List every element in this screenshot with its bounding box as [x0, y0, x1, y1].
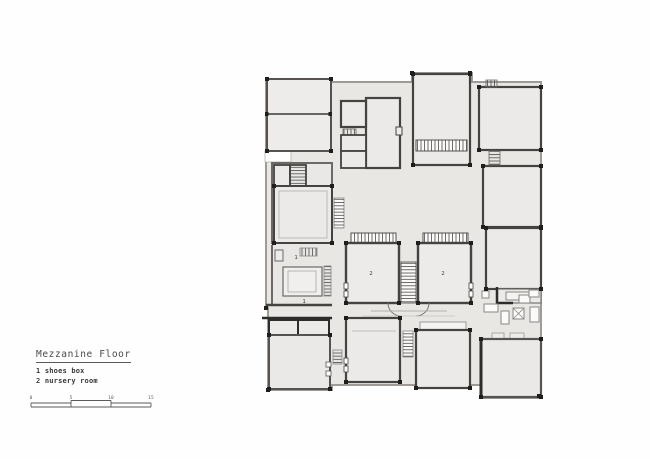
bench-hatch	[416, 140, 467, 151]
side-table	[519, 295, 530, 303]
small-square-room	[341, 101, 366, 127]
stair-hall-left	[334, 198, 344, 228]
room-top-center-right	[413, 74, 470, 165]
stair-bottom-left	[333, 350, 342, 364]
play-box	[513, 308, 524, 319]
drawing-sheet: 1 1 2 2 0 5 10 15 Mezzanine Floor 1 shoe…	[0, 0, 650, 459]
room-top-right	[479, 80, 541, 150]
room-top-left	[265, 79, 332, 151]
room-bottom-middle-right	[416, 322, 470, 388]
room-bottom-left-block	[262, 318, 332, 389]
room-right-upper	[483, 166, 541, 227]
scale-bar: 0 5 10 15	[30, 395, 154, 407]
scale-tick-0: 0	[30, 395, 33, 401]
scale-tick-5: 5	[70, 395, 73, 401]
room-left-middle-block	[272, 163, 332, 243]
stair-top-right	[486, 80, 497, 87]
stair-left-block	[290, 165, 306, 186]
stool	[482, 291, 489, 298]
lounge-chair	[530, 307, 539, 322]
deck-hatch-right	[423, 233, 468, 243]
stair-bottom-center	[403, 331, 413, 357]
room-right-lower	[486, 228, 541, 289]
scale-tick-15: 15	[148, 395, 154, 401]
bench	[484, 304, 498, 312]
deck-hatch-left	[351, 233, 396, 243]
title-block: Mezzanine Floor 1 shoes box 2 nursery ro…	[36, 342, 131, 386]
scale-tick-10: 10	[108, 395, 114, 401]
stair-shoes-area	[300, 248, 317, 256]
drawing-title: Mezzanine Floor	[36, 349, 131, 363]
room-bottom-right	[481, 333, 541, 397]
label-nursery-right: 2	[441, 271, 444, 277]
shelf-small	[529, 290, 539, 297]
stair-right-side	[489, 151, 500, 165]
chair	[501, 311, 509, 324]
label-nursery-left: 2	[369, 271, 372, 277]
service-room-1	[341, 135, 366, 151]
room-bottom-middle-left	[344, 318, 400, 382]
label-shoes-box-lower: 1	[302, 299, 305, 305]
room-nursery-left	[344, 233, 399, 303]
room-nursery-right	[418, 233, 473, 303]
legend-shoes-box: 1 shoes box	[36, 366, 131, 376]
label-shoes-box-upper: 1	[294, 255, 297, 261]
floor-plan-drawing: 1 1 2 2 0 5 10 15	[0, 0, 650, 459]
service-room-2	[341, 151, 366, 168]
small-room-a	[274, 165, 290, 186]
shoes-shelf	[324, 266, 331, 296]
room-upper-middle-block	[341, 98, 402, 168]
legend-nursery-room: 2 nursery room	[36, 376, 131, 386]
